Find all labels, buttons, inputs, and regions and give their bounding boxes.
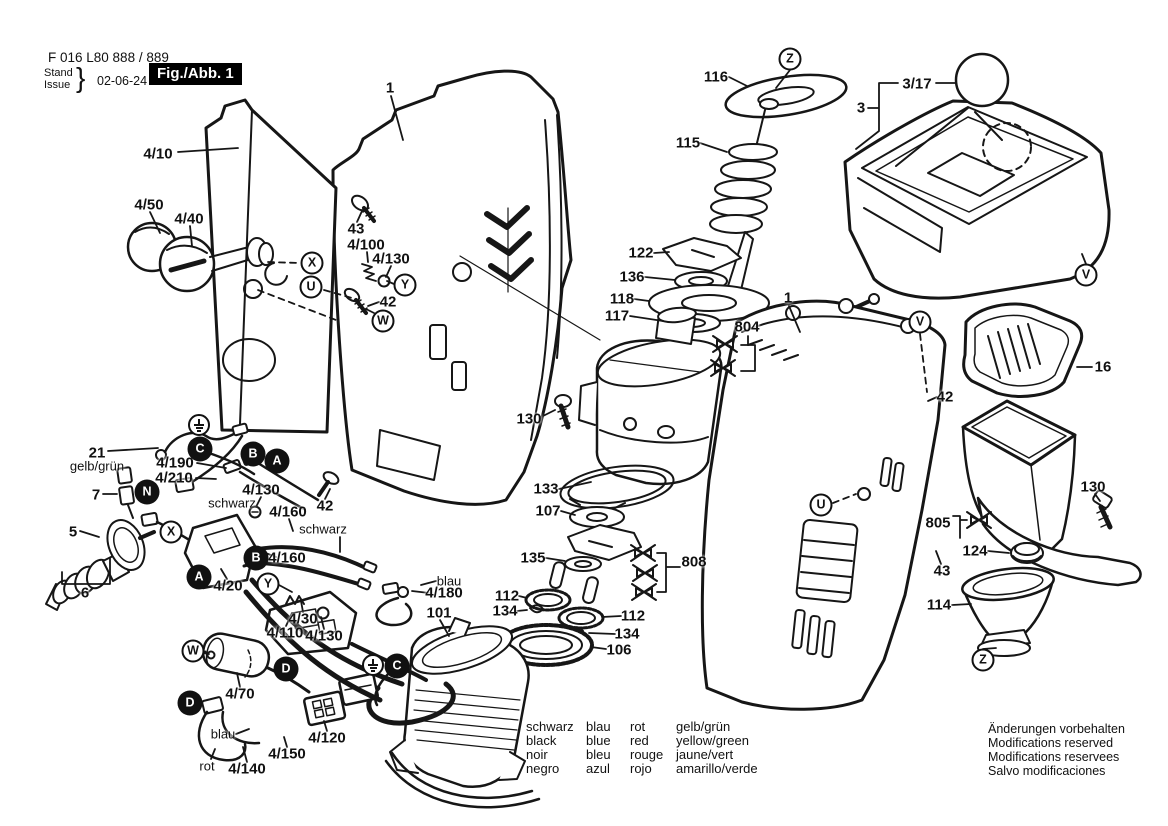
- ref-marker-z: Z: [779, 48, 802, 71]
- note-line: Salvo modificaciones: [988, 764, 1125, 778]
- part-number-label: 124: [962, 543, 987, 560]
- annotation-layer: 4/104/504/401434/1004/130421161151221361…: [0, 0, 1168, 826]
- part-number-label: 114: [927, 597, 951, 614]
- part-number-label: 117: [605, 308, 629, 325]
- part-number-label: 134: [492, 603, 517, 620]
- part-number-label: 4/130: [372, 251, 410, 268]
- parts-diagram-page: 4/104/504/401434/1004/130421161151221361…: [0, 0, 1168, 826]
- part-number-label: 118: [610, 291, 634, 308]
- note-line: Änderungen vorbehalten: [988, 722, 1125, 736]
- issue-label: Issue: [44, 80, 73, 92]
- wire-color-label: blau: [437, 574, 462, 589]
- ref-marker-n: N: [135, 480, 160, 505]
- part-number-label: 107: [535, 503, 560, 520]
- legend-cell: blau: [586, 720, 630, 734]
- part-number-label: 5: [69, 524, 77, 541]
- note-line: Modifications reserved: [988, 736, 1125, 750]
- ref-marker-x: X: [301, 252, 324, 275]
- wire-color-label: gelb/grün: [70, 459, 124, 474]
- part-number-label: 42: [937, 389, 954, 406]
- part-number-label: 133: [533, 481, 558, 498]
- legend-cell: jaune/vert: [676, 748, 758, 762]
- legend-cell: rot: [630, 720, 676, 734]
- part-number-label: 116: [704, 69, 728, 86]
- ref-marker-y: Y: [394, 274, 417, 297]
- part-number-label: 130: [1080, 479, 1105, 496]
- part-number-label: 805: [925, 515, 950, 532]
- brace-glyph: }: [76, 62, 85, 94]
- part-number-label: 42: [317, 498, 334, 515]
- ref-marker-a: A: [265, 449, 290, 474]
- ground-symbol-icon: [188, 414, 210, 436]
- part-number-label: 4/130: [305, 628, 343, 645]
- ref-marker-z: Z: [972, 649, 995, 672]
- part-number-label: 4/120: [308, 730, 346, 747]
- part-number-label: 16: [1095, 359, 1112, 376]
- part-number-label: 130: [516, 411, 541, 428]
- ref-marker-v: V: [1075, 264, 1098, 287]
- part-number-label: 4/10: [143, 146, 172, 163]
- part-number-label: 136: [619, 269, 644, 286]
- part-number-label: 6: [81, 585, 89, 602]
- part-number-label: 4/50: [134, 197, 163, 214]
- part-number-label: 101: [426, 605, 451, 622]
- part-number-label: 3: [857, 100, 865, 117]
- modification-notes: Änderungen vorbehalten Modifications res…: [988, 722, 1125, 778]
- color-legend: schwarz blau rot gelb/grün black blue re…: [526, 720, 758, 776]
- figure-number-badge: Fig./Abb. 1: [149, 63, 242, 85]
- ref-marker-x: X: [160, 521, 183, 544]
- wire-color-label: blau: [211, 727, 236, 742]
- legend-cell: azul: [586, 762, 630, 776]
- part-number-label: 43: [348, 221, 365, 238]
- wire-color-label: schwarz: [299, 522, 347, 537]
- ref-marker-y: Y: [257, 573, 280, 596]
- part-number-label: 43: [934, 563, 951, 580]
- part-number-label: 804: [734, 319, 759, 336]
- part-number-label: 42: [380, 294, 397, 311]
- ref-marker-c: C: [385, 654, 410, 679]
- legend-cell: red: [630, 734, 676, 748]
- issue-date: 02-06-24: [97, 74, 147, 88]
- part-number-label: 7: [92, 487, 100, 504]
- ref-marker-b: B: [244, 546, 269, 571]
- part-number-label: 4/160: [268, 550, 306, 567]
- part-number-label: 4/210: [155, 470, 193, 487]
- part-number-label: 4/70: [225, 686, 254, 703]
- ref-marker-a: A: [187, 565, 212, 590]
- legend-cell: schwarz: [526, 720, 586, 734]
- legend-cell: blue: [586, 734, 630, 748]
- part-number-label: 112: [621, 608, 645, 625]
- ref-marker-v: V: [909, 311, 932, 334]
- part-number-label: 4/140: [228, 761, 266, 778]
- stand-label: Stand: [44, 68, 73, 80]
- ref-marker-w: W: [372, 310, 395, 333]
- wire-color-label: schwarz: [208, 496, 256, 511]
- wire-color-label: rot: [199, 759, 214, 774]
- legend-cell: rouge: [630, 748, 676, 762]
- legend-cell: rojo: [630, 762, 676, 776]
- part-number-label: 3/17: [902, 76, 931, 93]
- part-number-label: 4/150: [268, 746, 306, 763]
- legend-cell: black: [526, 734, 586, 748]
- legend-cell: bleu: [586, 748, 630, 762]
- part-number-label: 122: [628, 245, 653, 262]
- part-number-label: 115: [676, 135, 700, 152]
- ref-marker-d: D: [274, 657, 299, 682]
- stand-issue-label: Stand Issue: [44, 68, 73, 91]
- legend-cell: negro: [526, 762, 586, 776]
- ground-symbol-icon: [362, 654, 384, 676]
- part-number-label: 4/110: [267, 625, 304, 642]
- part-number-label: 4/20: [213, 578, 242, 595]
- part-number-label: 4/40: [174, 211, 203, 228]
- ref-marker-b: B: [241, 442, 266, 467]
- ref-marker-c: C: [188, 437, 213, 462]
- part-number-label: 1: [784, 290, 792, 307]
- legend-cell: yellow/green: [676, 734, 758, 748]
- ref-marker-u: U: [810, 494, 833, 517]
- legend-cell: noir: [526, 748, 586, 762]
- part-number-label: 1: [386, 80, 394, 97]
- legend-cell: amarillo/verde: [676, 762, 758, 776]
- part-number-label: 135: [520, 550, 545, 567]
- ref-marker-d: D: [178, 691, 203, 716]
- part-number-label: 134: [614, 626, 639, 643]
- part-number-label: 808: [681, 554, 706, 571]
- part-number-label: 106: [606, 642, 631, 659]
- ref-marker-w: W: [182, 640, 205, 663]
- legend-cell: gelb/grün: [676, 720, 758, 734]
- ref-marker-u: U: [300, 276, 323, 299]
- part-number-label: 4/160: [269, 504, 307, 521]
- note-line: Modifications reservees: [988, 750, 1125, 764]
